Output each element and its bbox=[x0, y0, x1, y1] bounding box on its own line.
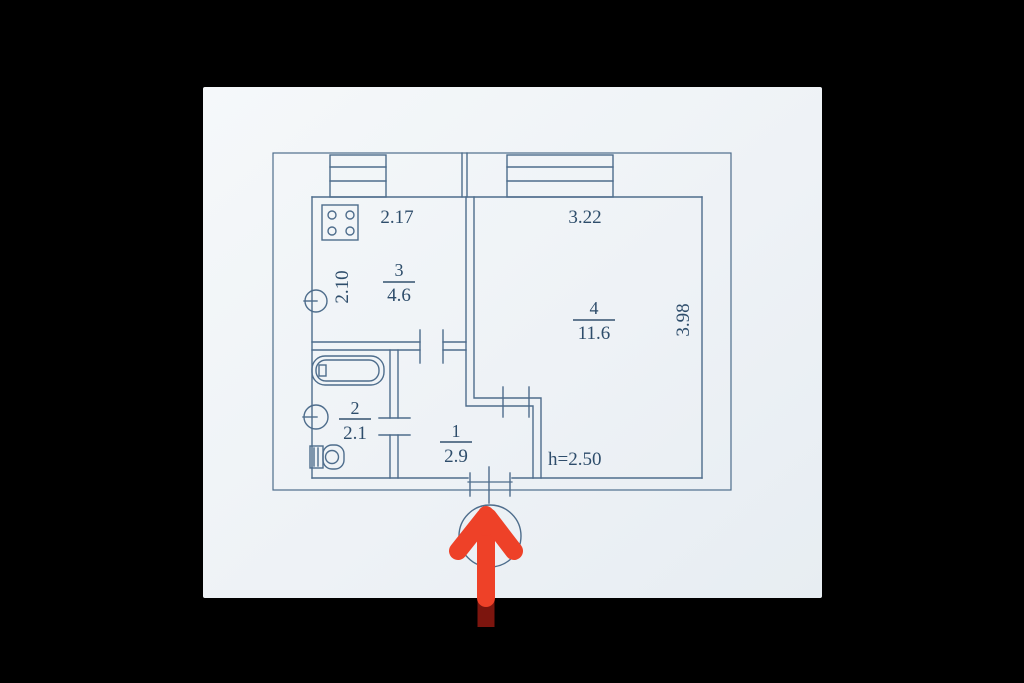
dim-kitchen-width: 2.17 bbox=[380, 207, 413, 228]
living-room-area: 11.6 bbox=[578, 323, 611, 344]
dim-kitchen-depth: 2.10 bbox=[332, 270, 353, 303]
hallway-room-number: 1 bbox=[452, 421, 461, 441]
floorplan-svg: 2.17 3.22 2.10 3.98 h=2.50 3 4.6 4 11.6 … bbox=[0, 0, 1024, 683]
ceiling-height-label: h=2.50 bbox=[548, 449, 601, 470]
photo-of-floorplan: 2.17 3.22 2.10 3.98 h=2.50 3 4.6 4 11.6 … bbox=[0, 0, 1024, 683]
dim-living-room-depth: 3.98 bbox=[673, 303, 694, 336]
paper-sheet bbox=[203, 87, 822, 598]
hallway-room-area: 2.9 bbox=[444, 446, 468, 467]
kitchen-room-number: 3 bbox=[395, 260, 404, 280]
living-room-number: 4 bbox=[590, 298, 599, 318]
bathroom-room-area: 2.1 bbox=[343, 423, 367, 444]
kitchen-room-area: 4.6 bbox=[387, 285, 411, 306]
bathroom-room-number: 2 bbox=[351, 398, 360, 418]
dim-living-room-width: 3.22 bbox=[568, 207, 601, 228]
